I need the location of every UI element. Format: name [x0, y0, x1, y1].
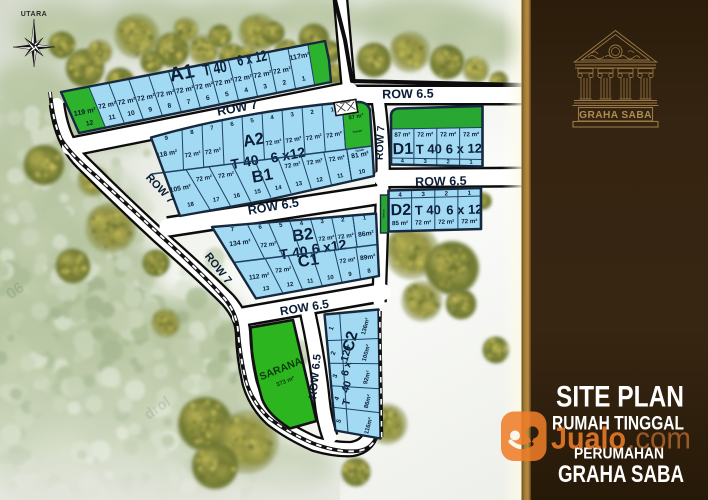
svg-text:72 m²: 72 m²: [440, 131, 456, 138]
svg-text:Taman: Taman: [382, 209, 386, 219]
svg-text:72 m²: 72 m²: [417, 131, 433, 138]
svg-text:ROW 6.5: ROW 6.5: [415, 174, 467, 189]
svg-text:GRAHA SABA: GRAHA SABA: [579, 110, 652, 121]
svg-text:SITE PLAN: SITE PLAN: [556, 381, 684, 414]
svg-text:6 x 12: 6 x 12: [446, 202, 483, 218]
svg-text:.com: .com: [627, 421, 691, 456]
svg-text:6 x 12: 6 x 12: [446, 141, 483, 157]
svg-text:B1: B1: [250, 165, 274, 187]
svg-text:ROW 6.5: ROW 6.5: [382, 87, 434, 102]
svg-text:72 m²: 72 m²: [415, 219, 431, 226]
svg-text:GRAHA SABA: GRAHA SABA: [558, 461, 684, 488]
svg-text:72 m²: 72 m²: [461, 218, 477, 225]
svg-text:T 40: T 40: [416, 141, 442, 157]
svg-text:D2: D2: [390, 202, 411, 220]
svg-text:72 m²: 72 m²: [438, 219, 454, 226]
svg-text:85 m²: 85 m²: [392, 220, 408, 227]
svg-text:A2: A2: [242, 129, 266, 151]
svg-text:ROW 7: ROW 7: [374, 125, 388, 160]
svg-text:T 40: T 40: [415, 202, 441, 218]
svg-text:D1: D1: [392, 141, 413, 159]
svg-text:87 m²: 87 m²: [394, 131, 410, 138]
svg-text:72 m²: 72 m²: [463, 131, 479, 138]
svg-text:UTARA: UTARA: [21, 11, 47, 18]
svg-text:Jualo: Jualo: [551, 421, 626, 456]
